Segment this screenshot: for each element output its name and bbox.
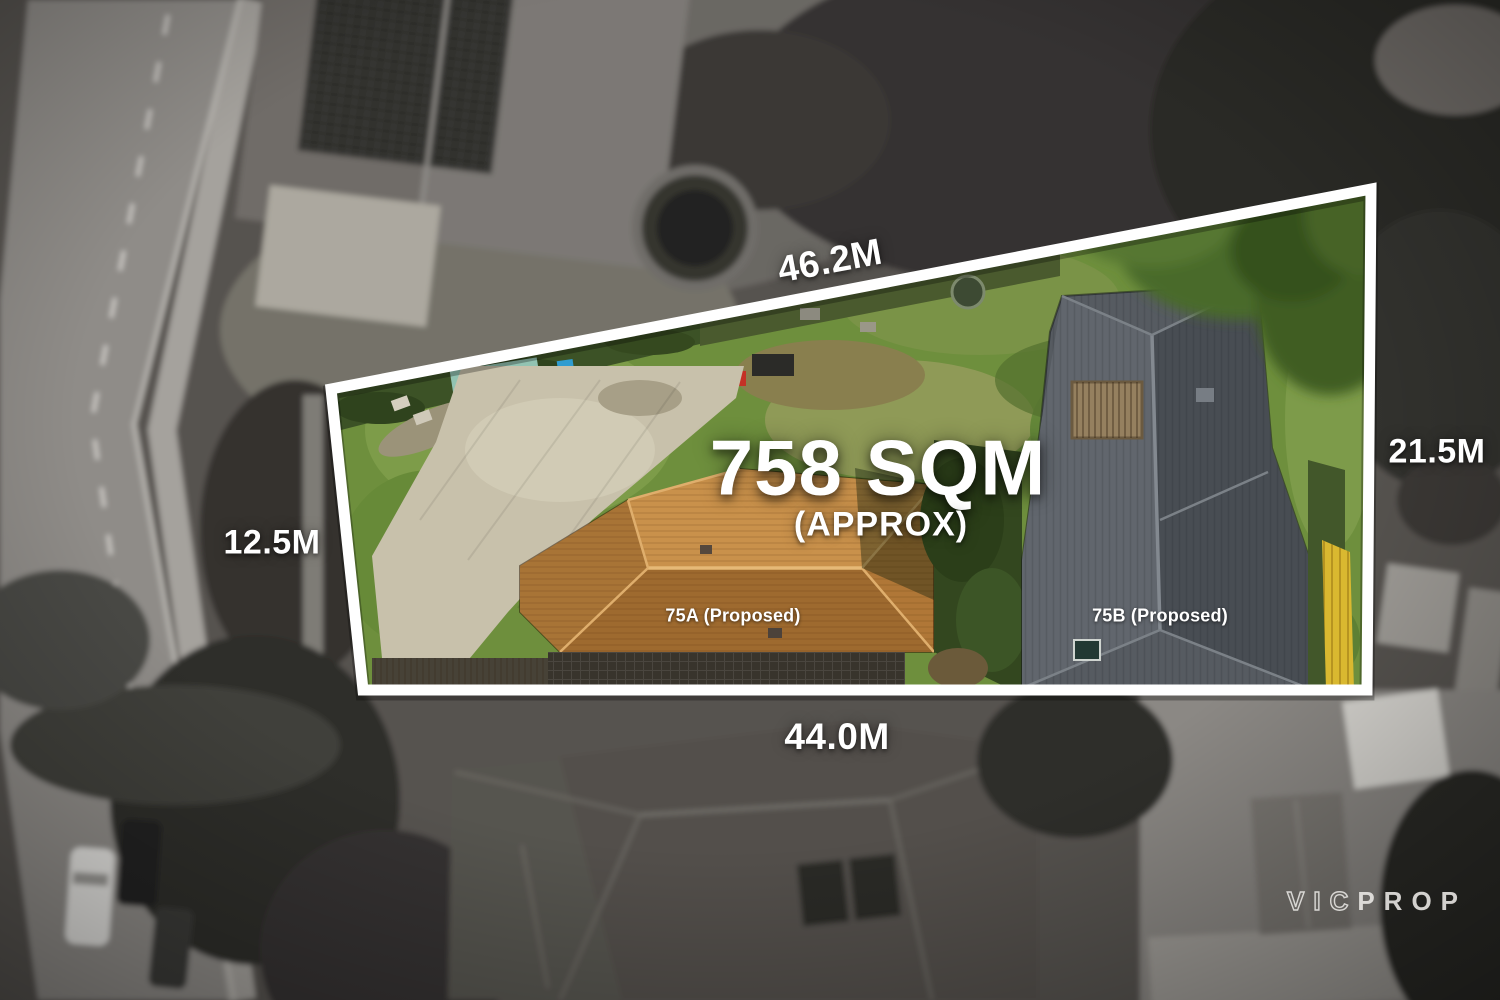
dimension-label-right: 21.5M: [1389, 433, 1486, 472]
dimension-label-bottom: 44.0M: [784, 716, 889, 758]
area-label: 758 SQM: [710, 423, 1046, 514]
area-approx-label: (APPROX): [794, 506, 968, 545]
aerial-property-photo: 46.2M 12.5M 21.5M 44.0M 758 SQM (APPROX)…: [0, 0, 1500, 1000]
lot-75b-label: 75B (Proposed): [1092, 606, 1228, 627]
small-trampoline: [952, 276, 984, 308]
watermark-outline-text: VIC: [1287, 886, 1357, 917]
roof-vent: [768, 628, 782, 638]
skylight: [1074, 640, 1100, 660]
lot-75a-label: 75A (Proposed): [665, 606, 800, 627]
dark-bins: [752, 354, 794, 376]
dimension-label-left: 12.5M: [224, 524, 321, 563]
vicprop-watermark: VICPROP: [1287, 886, 1467, 917]
watermark-solid-text: PROP: [1357, 886, 1467, 917]
